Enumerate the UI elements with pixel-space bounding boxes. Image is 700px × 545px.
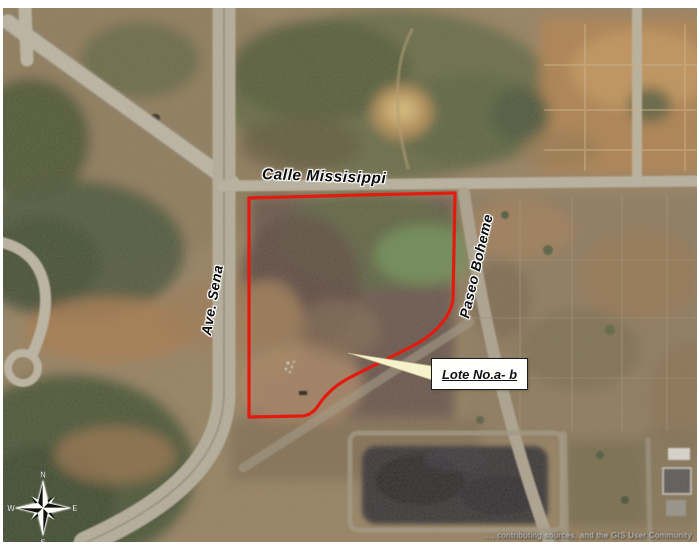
compass-letter-n: N	[40, 471, 46, 480]
satellite-map-canvas: N E S W	[0, 0, 700, 545]
map-screenshot: N E S W Calle Missisippi Ave. Sena Paseo…	[0, 0, 700, 545]
compass-letter-e: E	[72, 504, 78, 513]
attribution-text: …, contributing sources, and the GIS Use…	[484, 531, 692, 540]
compass-letter-w: W	[7, 504, 15, 513]
parcel-callout-label: Lote No.a- b	[442, 367, 517, 382]
image-grain-overlay	[0, 0, 700, 545]
parcel-callout-box: Lote No.a- b	[431, 358, 528, 390]
